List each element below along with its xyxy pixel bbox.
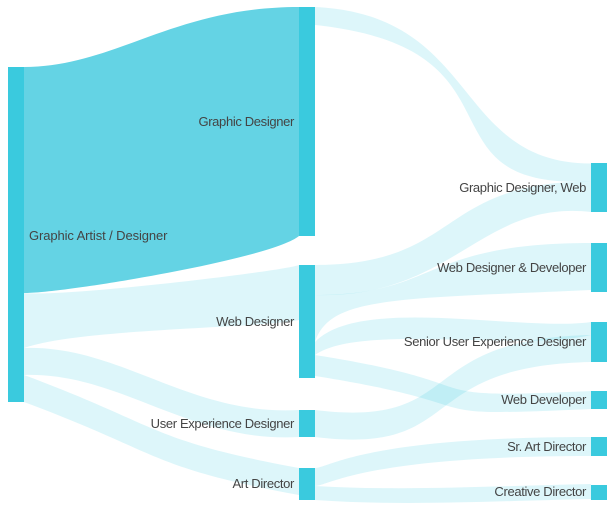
svg-text:Web Designer & Developer: Web Designer & Developer [437, 260, 587, 275]
svg-text:Creative Director: Creative Director [494, 484, 587, 499]
svg-text:Graphic Designer: Graphic Designer [198, 114, 295, 129]
svg-text:Web Designer: Web Designer [216, 314, 295, 329]
svg-text:User Experience Designer: User Experience Designer [151, 416, 295, 431]
svg-text:Graphic Artist / Designer: Graphic Artist / Designer [29, 228, 168, 243]
svg-text:Art Director: Art Director [232, 476, 295, 491]
svg-text:Graphic Designer, Web: Graphic Designer, Web [459, 180, 586, 195]
svg-text:Sr. Art Director: Sr. Art Director [507, 439, 587, 454]
svg-text:Web Developer: Web Developer [501, 392, 587, 407]
svg-text:Senior User Experience Designe: Senior User Experience Designer [404, 334, 587, 349]
